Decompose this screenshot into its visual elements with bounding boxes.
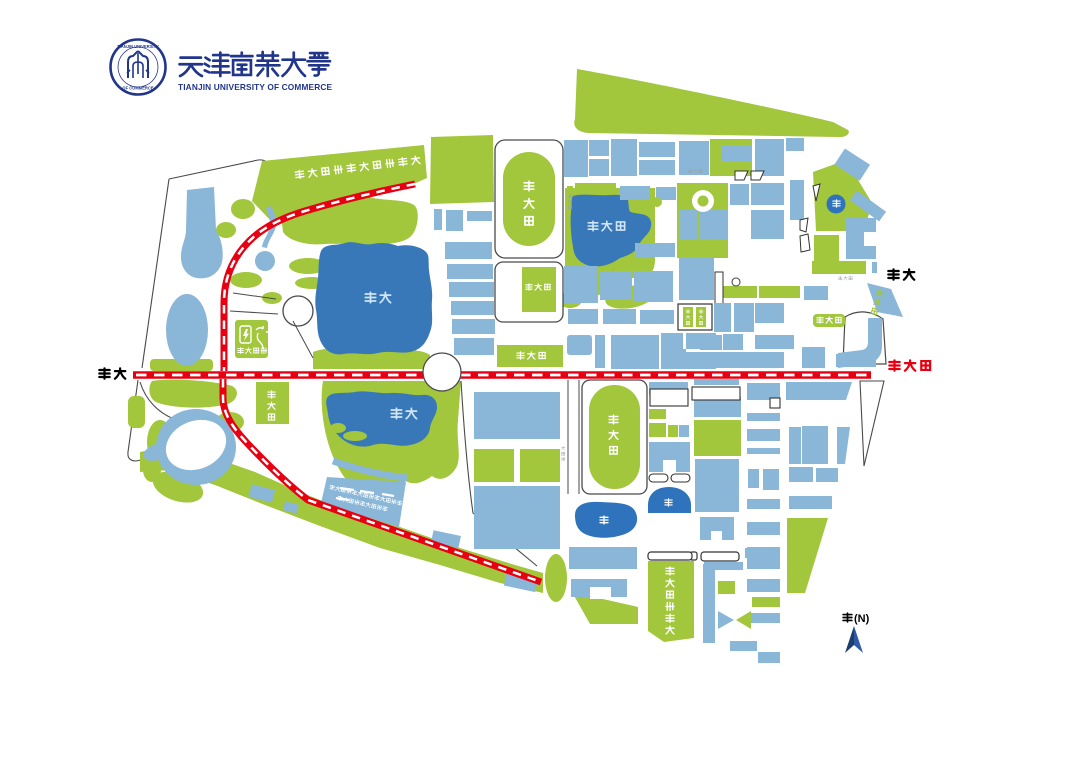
svg-text:(N): (N): [854, 613, 870, 625]
svg-text:TIANJIN UNIVERSITY: TIANJIN UNIVERSITY: [117, 44, 159, 49]
svg-text:TIANJIN UNIVERSITY OF COMMERCE: TIANJIN UNIVERSITY OF COMMERCE: [178, 82, 332, 92]
svg-text:OF COMMERCE: OF COMMERCE: [122, 86, 153, 91]
